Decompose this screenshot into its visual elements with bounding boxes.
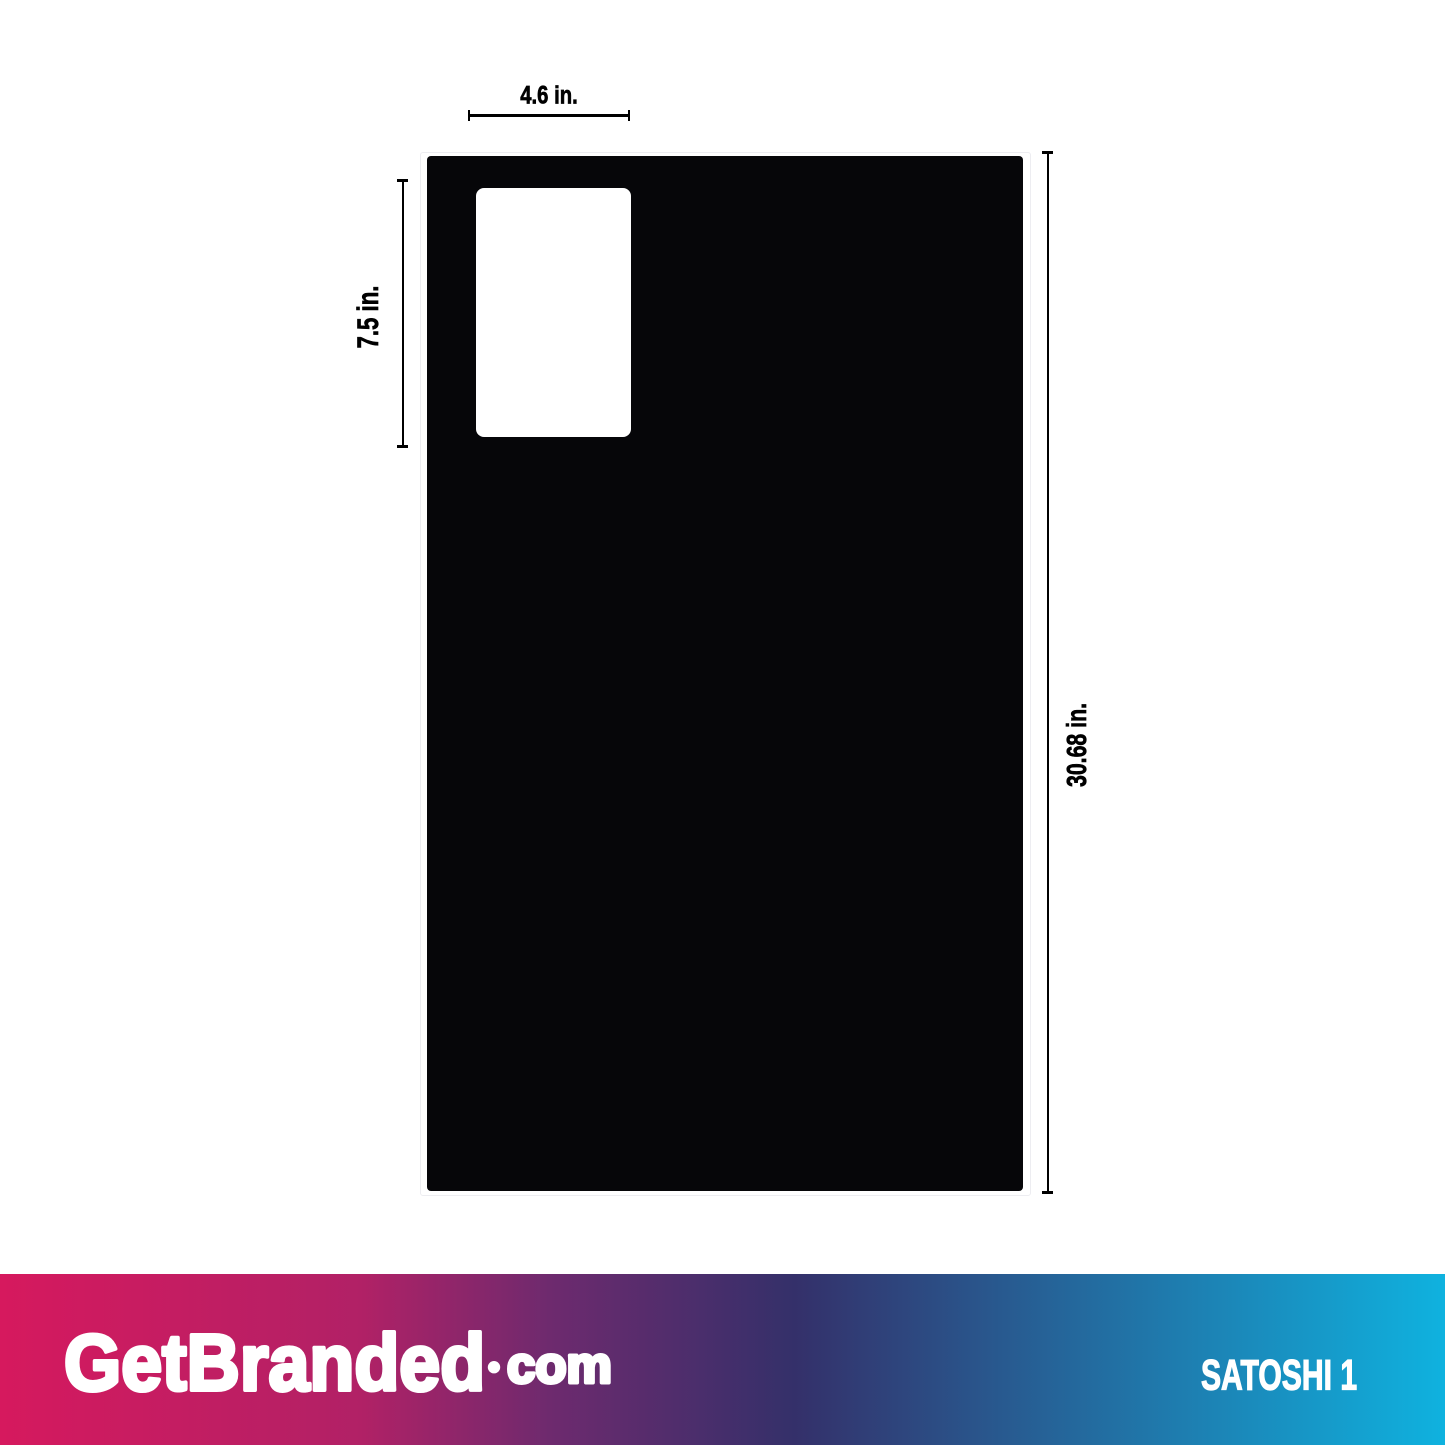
svg-text:com: com <box>507 1337 612 1394</box>
svg-text:GetBranded: GetBranded <box>64 1318 485 1408</box>
